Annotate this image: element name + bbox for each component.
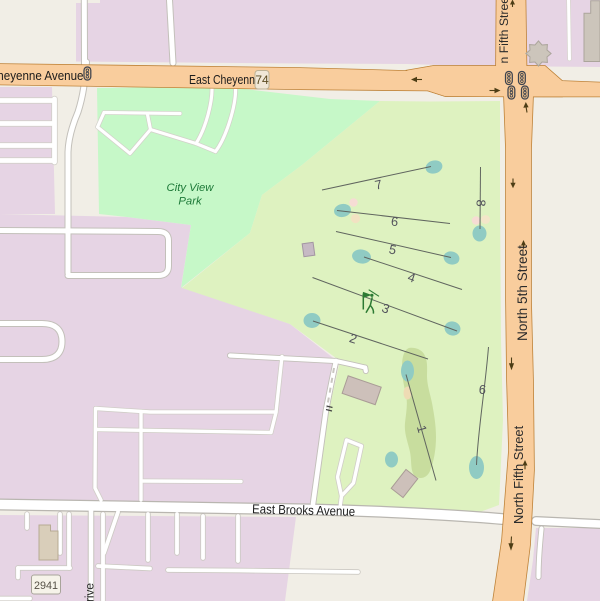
svg-text:North 5th Street: North 5th Street xyxy=(515,245,530,341)
svg-text:East Cheyenne Avenue: East Cheyenne Avenue xyxy=(0,68,84,83)
svg-text:East Brooks Avenue: East Brooks Avenue xyxy=(252,501,355,519)
svg-text:2941: 2941 xyxy=(34,580,58,592)
svg-text:East Cheyenn: East Cheyenn xyxy=(189,72,255,87)
svg-text:n Fifth Street: n Fifth Street xyxy=(497,0,511,64)
svg-text:rive: rive xyxy=(83,583,97,601)
svg-text:8: 8 xyxy=(474,200,489,207)
svg-text:City View: City View xyxy=(167,182,215,194)
svg-text:9: 9 xyxy=(478,382,486,398)
svg-text:74: 74 xyxy=(255,73,269,87)
svg-text:North Fifth Street: North Fifth Street xyxy=(511,425,526,524)
svg-text:Park: Park xyxy=(178,196,203,208)
